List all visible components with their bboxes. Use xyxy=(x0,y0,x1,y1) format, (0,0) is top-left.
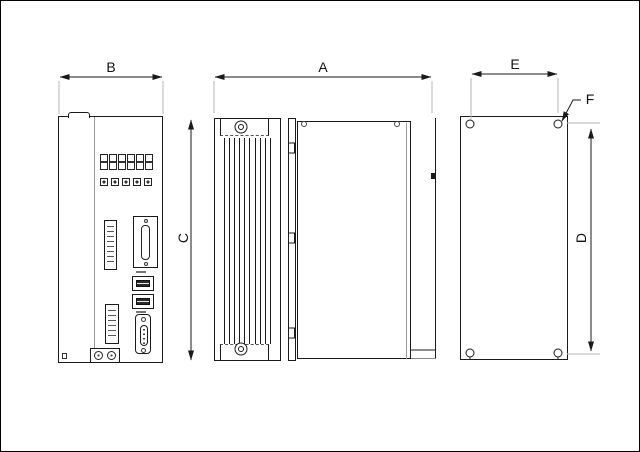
top-mounting-tab xyxy=(68,112,90,118)
body-inner-edge-line xyxy=(406,123,407,359)
connector-screw-icon xyxy=(141,317,146,322)
panel-button-icon xyxy=(122,178,130,186)
comm-connector-2 xyxy=(132,294,154,309)
io-connector xyxy=(133,216,158,268)
panel-button-icon xyxy=(100,178,108,186)
heatsink-fins-group-2 xyxy=(255,138,272,344)
display-digit-icon xyxy=(145,154,153,170)
connector-screw-icon xyxy=(141,348,146,353)
ground-screw-icon xyxy=(62,353,67,359)
front-view-outline xyxy=(58,116,163,363)
panel-button-row xyxy=(100,173,155,181)
dimension-drawing-canvas: B A E F C D xyxy=(0,0,640,452)
display-digit-icon xyxy=(100,154,108,170)
upper-terminal-block-connector xyxy=(104,220,117,270)
panel-button-icon xyxy=(133,178,141,186)
side-view-heatsink xyxy=(214,118,281,361)
dimension-label-a: A xyxy=(214,60,432,74)
panel-divider-line xyxy=(94,117,95,362)
display-digit-icon xyxy=(127,154,135,170)
rear-view-outline xyxy=(460,116,568,360)
terminal-pins-icon xyxy=(107,224,114,266)
connector-screw-icon xyxy=(144,219,148,223)
display-digit-icon xyxy=(136,154,144,170)
round-connector-icon xyxy=(94,351,103,360)
heatsink-fins-group-1 xyxy=(224,138,250,344)
heatsink-top-notch xyxy=(220,119,269,136)
round-connector-pair xyxy=(90,348,120,363)
dsub-connector xyxy=(135,314,151,354)
lower-terminal-block-connector xyxy=(105,304,119,344)
side-view-body xyxy=(297,121,411,359)
connector-label-mark xyxy=(136,271,146,273)
heatsink-bottom-notch xyxy=(220,344,269,360)
front-face-line xyxy=(435,118,436,359)
dimension-label-f: F xyxy=(584,92,596,106)
dimension-label-c: C xyxy=(176,228,190,248)
panel-button-icon xyxy=(144,178,152,186)
display-digit-icon xyxy=(118,154,126,170)
dimension-label-b: B xyxy=(59,60,163,74)
dimension-label-d: D xyxy=(574,228,588,248)
io-connector-slot xyxy=(141,225,150,260)
comm-connector-contacts-icon xyxy=(136,298,150,305)
display-digit-icon xyxy=(109,154,117,170)
terminal-pins-icon xyxy=(108,308,116,340)
dsub-pins-icon xyxy=(143,328,145,344)
comm-connector-contacts-icon xyxy=(136,280,150,287)
round-connector-icon xyxy=(107,351,116,360)
side-view-mounting-rail xyxy=(288,118,296,361)
comm-connector-1 xyxy=(132,276,154,291)
dimension-label-e: E xyxy=(471,57,559,71)
seven-segment-display xyxy=(100,154,154,170)
connector-screw-icon xyxy=(144,262,148,266)
bottom-edge-segment xyxy=(411,358,436,359)
panel-button-icon xyxy=(111,178,119,186)
connector-label-mark xyxy=(136,311,146,313)
dsub-shell xyxy=(140,325,148,346)
